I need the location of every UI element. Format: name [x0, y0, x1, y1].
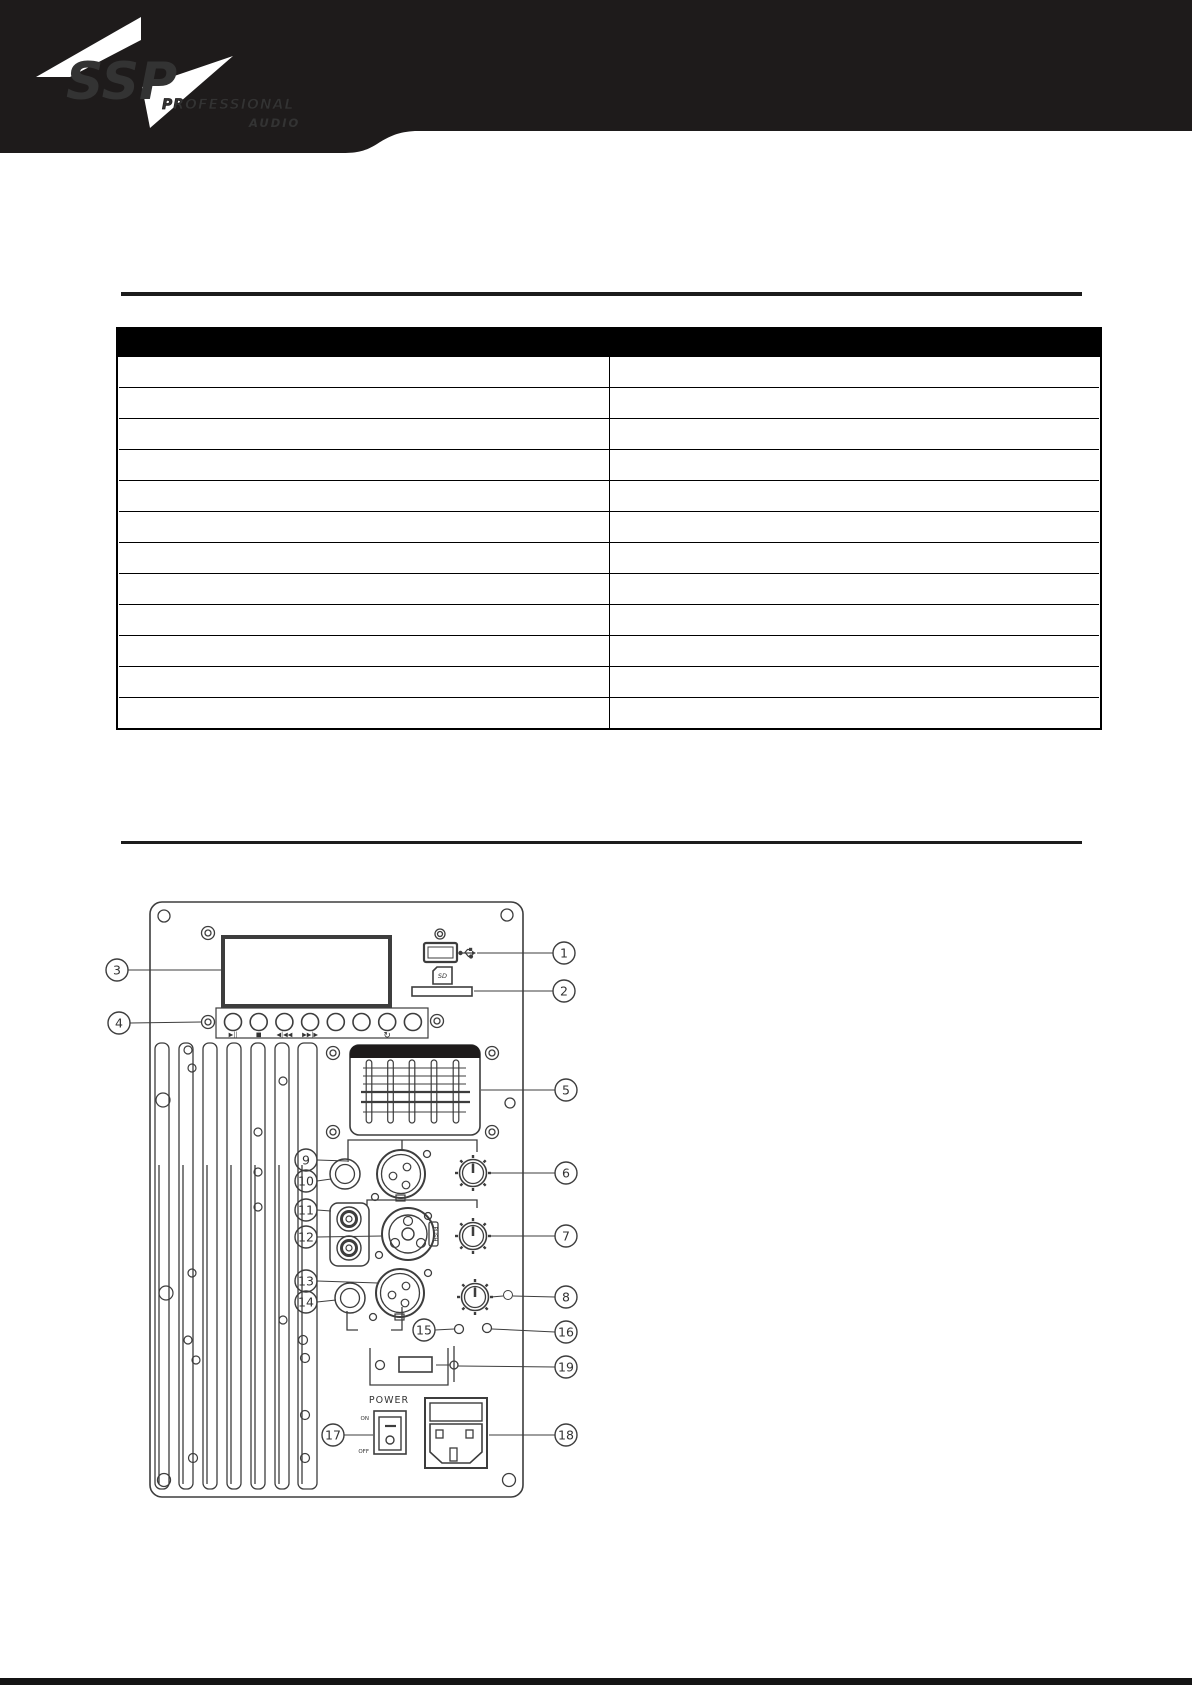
play-pause-icon: ▶||: [229, 1032, 238, 1039]
svg-text:3: 3: [113, 963, 121, 978]
led-indicator-3: [504, 1291, 513, 1300]
stop-button: [250, 1014, 267, 1031]
sd-card-icon: SD: [433, 967, 452, 984]
svg-text:16: 16: [558, 1325, 574, 1340]
sd-card-slot: [412, 987, 472, 996]
stop-icon: ■: [256, 1032, 262, 1039]
power-label: POWER: [369, 1395, 409, 1406]
svg-text:17: 17: [325, 1428, 341, 1443]
table-row: [119, 605, 1099, 636]
callout-7: 7: [555, 1225, 577, 1247]
next-icon: ▶▶|▶: [302, 1032, 318, 1039]
callout-15: 15: [413, 1319, 435, 1341]
callout-19: 19: [555, 1356, 577, 1378]
callout-16: 16: [555, 1321, 577, 1343]
screw-icon: [431, 1015, 444, 1028]
table-row: [119, 667, 1099, 698]
manual-page: SSP PROFESSIONAL AUDIO: [0, 0, 1192, 1685]
callout-3: 3: [106, 959, 128, 981]
screw-icon: [202, 1016, 215, 1029]
callout-1: 1: [553, 942, 575, 964]
svg-text:SD: SD: [438, 972, 447, 980]
next-button: [302, 1014, 319, 1031]
led-indicator-2: [483, 1324, 492, 1333]
callout-5: 5: [555, 1079, 577, 1101]
callout-18: 18: [555, 1424, 577, 1446]
media-button: [404, 1014, 421, 1031]
callout-12: 12: [295, 1226, 317, 1248]
usb-port: [424, 943, 457, 962]
table-row: [119, 450, 1099, 481]
table-row: [119, 388, 1099, 419]
screw-icon: [435, 929, 445, 939]
logo-text-main: SSP: [66, 52, 177, 112]
svg-text:14: 14: [298, 1295, 314, 1310]
callouts: 1 2 3 4 5 6 7 8 9 10 11 12 13 14 15 16 1…: [106, 942, 577, 1446]
screw-hole: [425, 1270, 432, 1277]
svg-text:15: 15: [416, 1323, 432, 1338]
table-row: [119, 419, 1099, 450]
callout-leader-lines: [128, 953, 555, 1435]
prev-icon: ◀|◀◀: [276, 1032, 292, 1039]
push-label: PUSH: [432, 1227, 438, 1242]
led-indicator-1: [455, 1325, 464, 1334]
rear-panel-diagram: SD ▶|| ■ ◀|◀◀ ▶▶|▶ ↻: [95, 890, 590, 1515]
vent-hole: [505, 1098, 515, 1108]
svg-text:1: 1: [560, 946, 568, 961]
power-switch: [374, 1411, 406, 1454]
svg-text:5: 5: [562, 1083, 570, 1098]
callout-14: 14: [295, 1291, 317, 1313]
callout-6: 6: [555, 1162, 577, 1184]
section-divider-middle: [121, 841, 1082, 844]
volume-knob-2: [455, 1218, 491, 1254]
screw-hole: [424, 1151, 431, 1158]
callout-4: 4: [108, 1012, 130, 1034]
spec-table-container: [116, 327, 1102, 730]
volume-knob-1: [455, 1155, 491, 1191]
section-divider-top: [121, 292, 1082, 296]
spec-table: [118, 329, 1100, 728]
table-row: [119, 356, 1099, 388]
table-row: [119, 698, 1099, 729]
table-row: [119, 512, 1099, 543]
xlr-male-connector-2: [376, 1269, 424, 1320]
quarter-inch-jack-1: [330, 1159, 360, 1189]
speaker-grille: [350, 1045, 480, 1135]
svg-text:12: 12: [298, 1230, 314, 1245]
lcd-display: [223, 937, 390, 1006]
media-button: [353, 1014, 370, 1031]
svg-text:7: 7: [562, 1229, 570, 1244]
screw-hole: [376, 1252, 383, 1259]
group-bracket: [367, 1200, 477, 1208]
callout-17: 17: [322, 1424, 344, 1446]
callout-8: 8: [555, 1286, 577, 1308]
table-row: [119, 574, 1099, 605]
svg-text:19: 19: [558, 1360, 574, 1375]
volume-knob-3: [457, 1279, 493, 1315]
screw-hole: [370, 1314, 377, 1321]
screw-icon: [486, 1126, 499, 1139]
rca-jack-plate: [330, 1203, 369, 1266]
heatsink-fins: [155, 1043, 317, 1489]
screw-icon: [327, 1126, 340, 1139]
prev-button: [276, 1014, 293, 1031]
page-footer-bar: [0, 1678, 1192, 1685]
media-button-row: ▶|| ■ ◀|◀◀ ▶▶|▶ ↻: [216, 1008, 428, 1041]
svg-text:4: 4: [115, 1016, 123, 1031]
quarter-inch-jack-2: [335, 1283, 365, 1313]
logo-text-audio: AUDIO: [248, 116, 300, 130]
iec-power-inlet: [425, 1398, 487, 1468]
screw-icon: [486, 1047, 499, 1060]
table-row: [119, 636, 1099, 667]
page-header: SSP PROFESSIONAL AUDIO: [0, 0, 1192, 160]
group-bracket: [347, 1311, 358, 1330]
on-label: ON: [361, 1416, 369, 1422]
table-header-row: [119, 330, 1099, 356]
table-header-cell: [119, 330, 1099, 356]
svg-text:8: 8: [562, 1290, 570, 1305]
callout-2: 2: [553, 980, 575, 1002]
table-row: [119, 481, 1099, 512]
media-button: [327, 1014, 344, 1031]
svg-text:18: 18: [558, 1428, 574, 1443]
usb-icon: [459, 948, 476, 958]
callout-13: 13: [295, 1270, 317, 1292]
logo-text-professional: PROFESSIONAL: [162, 97, 294, 113]
repeat-icon: ↻: [383, 1031, 391, 1041]
play-pause-button: [225, 1014, 242, 1031]
combo-xlr-jack-connector: [382, 1208, 434, 1260]
fuse-drawer: [399, 1357, 432, 1372]
screw-icon: [327, 1047, 340, 1060]
svg-text:11: 11: [298, 1203, 314, 1218]
table-row: [119, 543, 1099, 574]
xlr-male-connector-1: [377, 1150, 425, 1201]
svg-text:2: 2: [560, 984, 568, 999]
svg-text:9: 9: [302, 1153, 310, 1168]
off-label: OFF: [358, 1449, 369, 1455]
repeat-button: [379, 1014, 396, 1031]
callout-11: 11: [295, 1199, 317, 1221]
callout-10: 10: [295, 1170, 317, 1192]
svg-text:10: 10: [298, 1174, 314, 1189]
svg-text:13: 13: [298, 1274, 314, 1289]
screw-icon: [202, 927, 215, 940]
svg-text:6: 6: [562, 1166, 570, 1181]
